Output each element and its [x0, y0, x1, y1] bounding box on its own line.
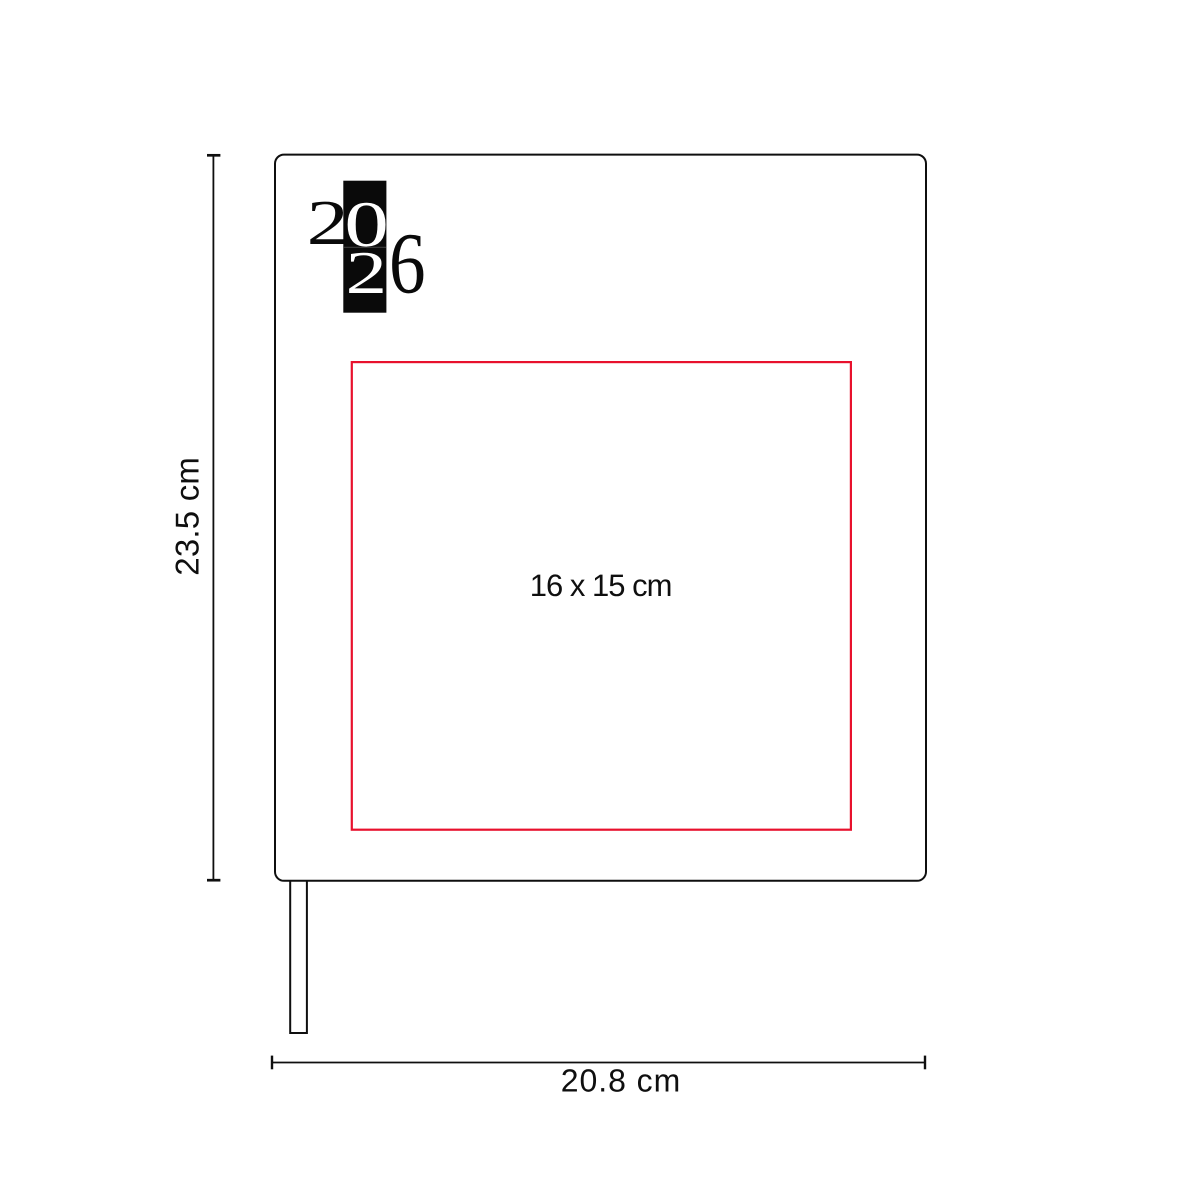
svg-text:16 x 15 cm: 16 x 15 cm [530, 568, 672, 603]
svg-text:6: 6 [389, 214, 426, 311]
svg-text:2: 2 [307, 187, 349, 258]
svg-text:2: 2 [346, 240, 388, 307]
svg-text:23.5 cm: 23.5 cm [169, 457, 206, 576]
svg-text:20.8 cm: 20.8 cm [561, 1063, 681, 1099]
